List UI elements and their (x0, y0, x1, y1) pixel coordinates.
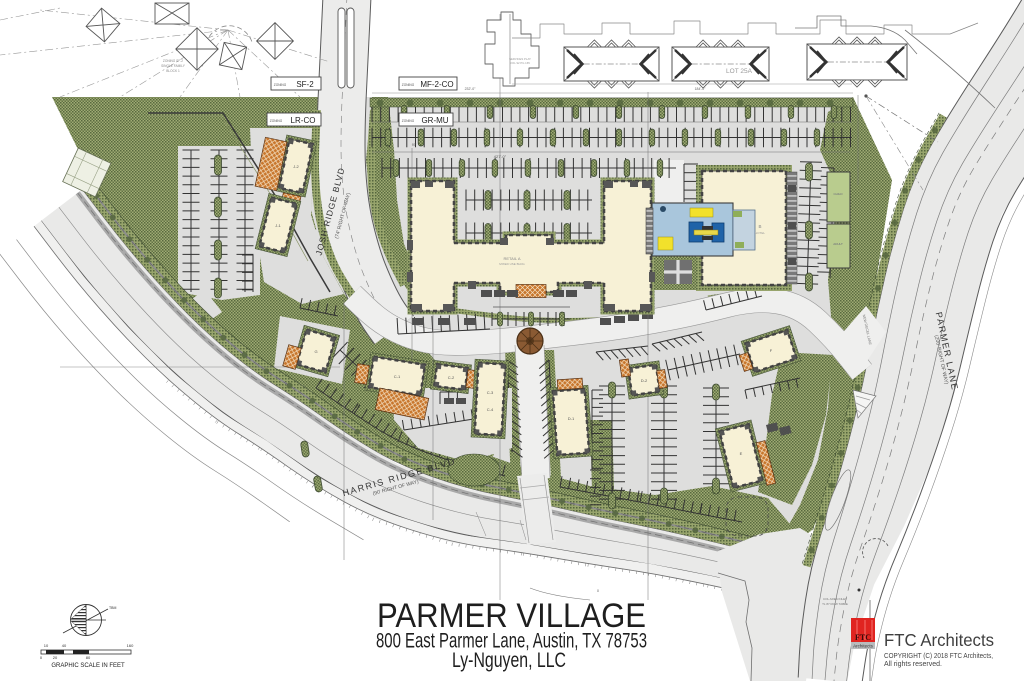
svg-text:All rights reserved.: All rights reserved. (884, 661, 942, 668)
svg-text:HOTEL: HOTEL (755, 231, 765, 235)
svg-text:C-4: C-4 (487, 407, 494, 412)
svg-text:FTC: FTC (855, 633, 871, 642)
svg-text:ZONING SF-2: ZONING SF-2 (163, 59, 183, 63)
svg-text:COPYRIGHT (C) 2018 FTC Archite: COPYRIGHT (C) 2018 FTC Architects, (884, 653, 993, 660)
svg-text:D-2: D-2 (641, 378, 648, 383)
svg-text:ZONING: ZONING (270, 119, 283, 123)
svg-text:Architects: Architects (853, 644, 874, 649)
svg-text:Ly-Nguyen, LLC: Ly-Nguyen, LLC (452, 649, 566, 672)
svg-text:LOT 25A: LOT 25A (726, 68, 753, 75)
svg-text:ADULT: ADULT (833, 242, 843, 246)
svg-text:232'-0": 232'-0" (465, 87, 477, 91)
svg-text:ZONING: ZONING (402, 83, 415, 87)
svg-text:G: G (314, 349, 317, 354)
svg-text:VOL 92 PG 165: VOL 92 PG 165 (510, 61, 530, 65)
svg-text:J-2: J-2 (293, 164, 299, 169)
svg-text:10: 10 (44, 643, 49, 648)
svg-text:TBM: TBM (109, 606, 116, 610)
svg-text:184'-0": 184'-0" (695, 87, 707, 91)
svg-text:C-1: C-1 (394, 374, 401, 379)
svg-text:40: 40 (62, 643, 67, 648)
svg-text:ZONING: ZONING (274, 83, 287, 87)
svg-text:RETAIL A: RETAIL A (503, 256, 520, 261)
svg-text:B: B (758, 224, 761, 229)
svg-text:MF-2-CO: MF-2-CO (420, 80, 453, 89)
svg-text:GR-MU: GR-MU (421, 116, 448, 125)
svg-text:CHILD: CHILD (833, 192, 843, 196)
svg-text:LR-CO: LR-CO (291, 116, 316, 125)
svg-text:E: E (740, 451, 743, 456)
svg-text:C-2: C-2 (448, 375, 455, 380)
svg-text:ZONING: ZONING (402, 119, 415, 123)
svg-text:80: 80 (86, 655, 91, 660)
svg-text:TL 87 ROW TABLE: TL 87 ROW TABLE (822, 602, 848, 606)
svg-text:BLOCK 1: BLOCK 1 (166, 69, 180, 73)
svg-text:20: 20 (53, 655, 58, 660)
svg-text:MIXED USE BLDG: MIXED USE BLDG (499, 262, 525, 266)
svg-text:SF-2: SF-2 (296, 80, 314, 89)
svg-text:8: 8 (597, 589, 599, 593)
svg-text:SINGLE FAMILY: SINGLE FAMILY (161, 64, 186, 68)
svg-text:GRAPHIC SCALE IN FEET: GRAPHIC SCALE IN FEET (51, 663, 125, 669)
svg-text:97': 97' (412, 143, 417, 147)
svg-text:427'-0": 427'-0" (494, 154, 507, 159)
svg-text:FTC Architects: FTC Architects (884, 630, 994, 650)
svg-text:160: 160 (127, 643, 134, 648)
svg-text:J-1: J-1 (275, 223, 281, 228)
svg-text:D-1: D-1 (568, 416, 575, 421)
svg-text:COL AREA INLET: COL AREA INLET (823, 597, 847, 601)
svg-text:C-3: C-3 (487, 390, 494, 395)
